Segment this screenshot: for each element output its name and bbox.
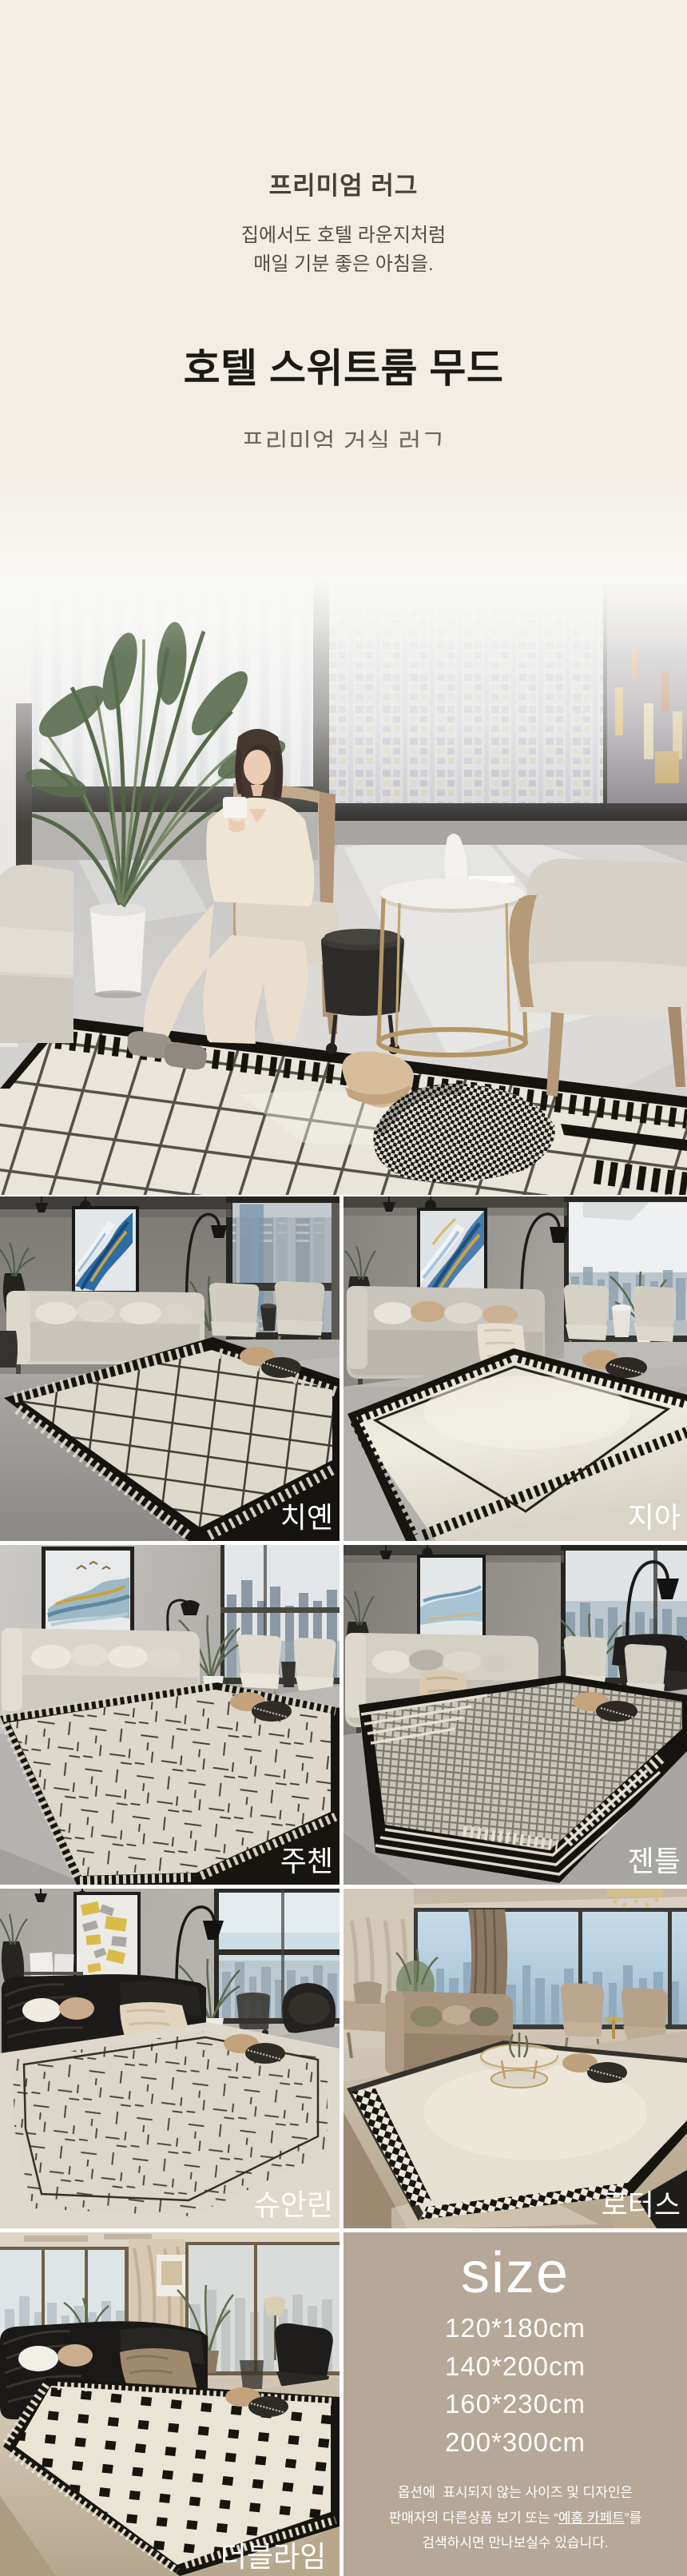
svg-text:로터스: 로터스 xyxy=(602,2188,681,2221)
svg-text:주첸: 주첸 xyxy=(280,1845,333,1877)
svg-text:치옌: 치옌 xyxy=(280,1501,333,1534)
svg-text:더블라임: 더블라임 xyxy=(220,2540,326,2573)
svg-text:지아: 지아 xyxy=(628,1501,681,1534)
svg-text:젠틀: 젠틀 xyxy=(628,1845,681,1877)
svg-text:슈안린: 슈안린 xyxy=(254,2188,333,2221)
